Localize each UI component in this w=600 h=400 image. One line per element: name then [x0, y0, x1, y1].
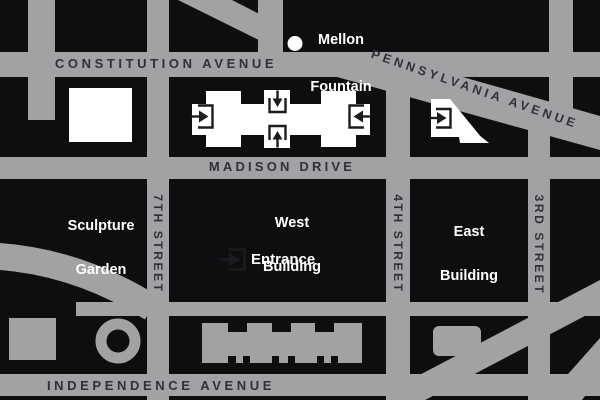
building-federal-square [69, 88, 132, 142]
comb-notch [228, 323, 247, 332]
west-building-right-bottom-wing [321, 135, 356, 147]
building-hirshhorn-ring [101, 324, 135, 358]
building-gray-square [9, 318, 56, 360]
mellon-fountain-label: Mellon Fountain [276, 2, 406, 126]
sculpture-line1: Sculpture [33, 219, 169, 234]
west-building-label: West Building [224, 187, 360, 303]
street-label-madison-drive: MADISON DRIVE [192, 159, 372, 175]
comb-notch [317, 356, 324, 363]
entrance-label: Entrance [251, 251, 315, 268]
comb-notch [243, 356, 250, 363]
comb-notch [288, 356, 295, 363]
comb-notch [331, 356, 338, 363]
nga-area-map: CONSTITUTION AVENUE MADISON DRIVE INDEPE… [0, 0, 600, 400]
sculpture-garden-label: Sculpture Garden [33, 190, 169, 306]
sculpture-line2: Garden [33, 263, 169, 278]
east-building-label: East Building [401, 196, 537, 312]
east-building-line2: Building [401, 269, 537, 284]
west-building-left-bottom-wing [206, 135, 241, 147]
mellon-line2: Fountain [276, 80, 406, 96]
comb-notch [272, 323, 291, 332]
building-comb [202, 323, 362, 363]
east-building-line1: East [401, 225, 537, 240]
street-label-independence-avenue: INDEPENDENCE AVENUE [31, 378, 291, 394]
comb-notch [315, 323, 334, 332]
building-rounded-trapezoid [433, 326, 481, 356]
comb-notch [228, 356, 236, 363]
comb-notch [272, 356, 279, 363]
west-building-left-top-wing [206, 91, 241, 104]
west-building-line1: West [224, 216, 360, 231]
mellon-line1: Mellon [276, 33, 406, 49]
street-label-constitution-avenue: CONSTITUTION AVENUE [36, 56, 296, 72]
